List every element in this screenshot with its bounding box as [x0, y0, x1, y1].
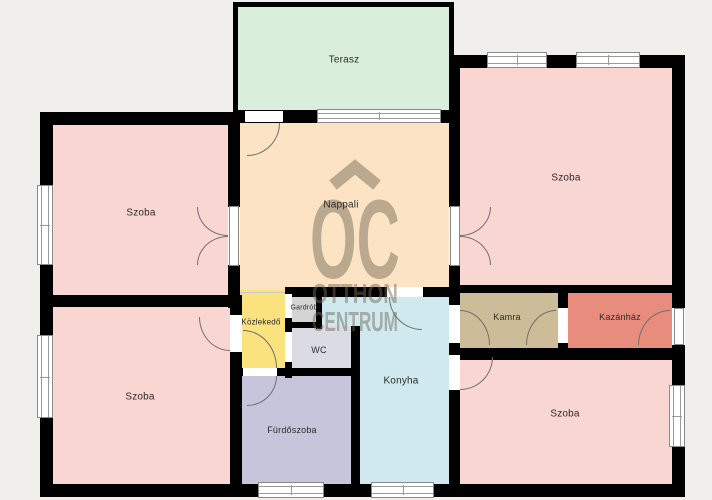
room-label-szoba-tl: Szoba [126, 208, 155, 219]
room-label-kazanhaz: Kazánház [599, 312, 641, 322]
room-label-szoba-bl: Szoba [125, 392, 154, 403]
room-label-konyha: Konyha [383, 376, 418, 387]
room-label-kozlekedo: Közlekedő [241, 318, 280, 327]
room-label-szoba-tr: Szoba [551, 173, 580, 184]
room-label-furdoszoba: Fürdőszoba [267, 425, 317, 435]
room-labels-layer: TeraszSzobaNappaliSzobaKözlekedőGardróbW… [0, 0, 712, 500]
room-label-wc: WC [311, 345, 326, 355]
room-label-gardrob: Gardrób [290, 305, 317, 312]
floor-plan: OC OTTHON CENTRUM TeraszSzobaNappaliSzob… [0, 0, 712, 500]
room-label-terasz: Terasz [329, 55, 360, 66]
room-label-szoba-br: Szoba [550, 409, 579, 420]
room-label-kamra: Kamra [493, 312, 521, 322]
room-label-nappali: Nappali [323, 200, 358, 211]
